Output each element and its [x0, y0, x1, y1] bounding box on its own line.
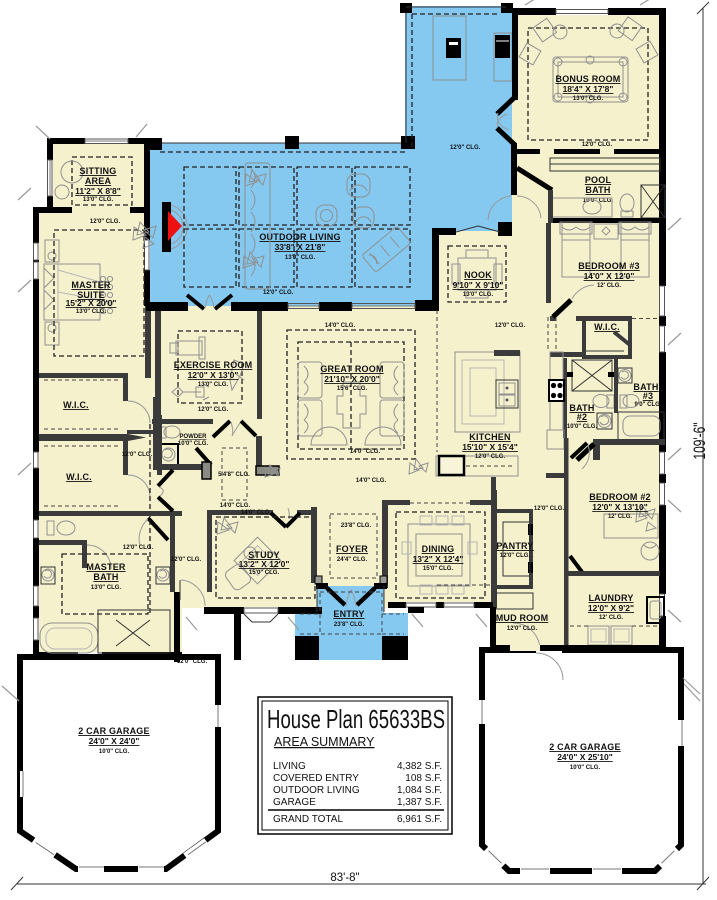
svg-text:#3: #3	[643, 391, 653, 401]
svg-text:13'2" X 12'0": 13'2" X 12'0"	[239, 559, 290, 569]
svg-text:23'8" CLG.: 23'8" CLG.	[341, 523, 372, 529]
svg-text:12'0" CLG.: 12'0" CLG.	[122, 452, 153, 458]
svg-text:10'0" CLG.: 10'0" CLG.	[567, 424, 598, 430]
svg-text:13'0" CLG.: 13'0" CLG.	[91, 585, 122, 591]
svg-text:5'4'8" CLG.: 5'4'8" CLG.	[218, 472, 250, 478]
svg-text:18'4" X 17'8": 18'4" X 17'8"	[563, 84, 614, 94]
svg-text:24'0" X 24'0": 24'0" X 24'0"	[89, 736, 140, 746]
svg-text:LAUNDRY: LAUNDRY	[588, 593, 633, 603]
svg-text:MASTER: MASTER	[86, 562, 125, 572]
svg-text:BONUS ROOM: BONUS ROOM	[556, 74, 621, 84]
svg-text:1,387 S.F.: 1,387 S.F.	[397, 797, 442, 808]
svg-text:109'-6": 109'-6"	[690, 423, 709, 460]
svg-text:1,084 S.F.: 1,084 S.F.	[397, 785, 442, 796]
svg-text:LIVING: LIVING	[273, 761, 306, 772]
svg-text:GRAND TOTAL: GRAND TOTAL	[273, 814, 343, 825]
svg-text:14'0" CLG.: 14'0" CLG.	[220, 503, 251, 509]
svg-text:W.I.C.: W.I.C.	[63, 400, 89, 410]
svg-text:MASTER: MASTER	[71, 280, 110, 290]
svg-text:PANTRY: PANTRY	[496, 541, 533, 551]
svg-text:12'0" CLG.: 12'0" CLG.	[475, 454, 506, 460]
svg-text:15'2" X 20'0": 15'2" X 20'0"	[66, 298, 117, 308]
svg-text:12' CLG.: 12' CLG.	[608, 514, 632, 520]
svg-text:11'2" X 8'8": 11'2" X 8'8"	[75, 186, 121, 196]
svg-text:House Plan 65633BS: House Plan 65633BS	[267, 704, 445, 734]
svg-text:24'0" X 25'10": 24'0" X 25'10"	[557, 752, 613, 762]
svg-text:BEDROOM #3: BEDROOM #3	[578, 261, 640, 271]
svg-text:12'0" CLG.: 12'0" CLG.	[507, 626, 538, 632]
svg-text:W.I.C.: W.I.C.	[594, 322, 620, 332]
svg-text:83'-8": 83'-8"	[330, 872, 359, 884]
svg-text:EXERCISE ROOM: EXERCISE ROOM	[174, 360, 253, 370]
svg-text:14'0" CLG.: 14'0" CLG.	[325, 323, 356, 329]
svg-text:10'0" CLG.: 10'0" CLG.	[570, 765, 601, 771]
svg-text:14'0" X 12'0": 14'0" X 12'0"	[584, 271, 635, 281]
svg-text:15'6" CLG.: 15'6" CLG.	[337, 386, 368, 392]
svg-text:15'0" CLG.: 15'0" CLG.	[249, 570, 280, 576]
svg-text:W.I.C.: W.I.C.	[66, 472, 92, 482]
svg-text:12'0" X 13'0": 12'0" X 13'0"	[188, 370, 239, 380]
svg-text:4,382 S.F.: 4,382 S.F.	[397, 761, 442, 772]
svg-text:12'0" CLG.: 12'0" CLG.	[171, 557, 202, 563]
svg-text:BEDROOM #2: BEDROOM #2	[589, 492, 651, 502]
svg-text:BATH: BATH	[93, 572, 118, 582]
svg-text:MUD ROOM: MUD ROOM	[496, 613, 549, 623]
svg-text:13'0" CLG.: 13'0" CLG.	[83, 197, 114, 203]
svg-text:15'10" X 15'4": 15'10" X 15'4"	[462, 442, 518, 452]
svg-text:AREA: AREA	[85, 176, 112, 186]
svg-text:12'0" CLG.: 12'0" CLG.	[177, 659, 208, 665]
svg-text:OUTDOOR LIVING: OUTDOOR LIVING	[259, 232, 340, 242]
svg-text:14'0" CLG.: 14'0" CLG.	[356, 478, 387, 484]
svg-text:OUTDOOR LIVING: OUTDOOR LIVING	[273, 785, 360, 796]
svg-text:108 S.F.: 108 S.F.	[405, 773, 442, 784]
svg-text:10'0" CLG.: 10'0" CLG.	[178, 441, 209, 447]
svg-text:12'0" CLG.: 12'0" CLG.	[90, 219, 121, 225]
svg-text:10'0" CLG.: 10'0" CLG.	[99, 749, 130, 755]
svg-text:NOOK: NOOK	[464, 270, 492, 280]
svg-text:SITTING: SITTING	[80, 166, 117, 176]
svg-text:13'0" CLG.: 13'0" CLG.	[198, 382, 229, 388]
svg-text:13'0" CLG.: 13'0" CLG.	[463, 292, 494, 298]
svg-text:ENTRY: ENTRY	[333, 609, 364, 619]
svg-text:24'4" CLG.: 24'4" CLG.	[337, 557, 368, 563]
svg-text:12'0" CLG.: 12'0" CLG.	[198, 407, 229, 413]
svg-text:12'0" CLG.: 12'0" CLG.	[500, 553, 531, 559]
svg-text:DINING: DINING	[422, 544, 455, 554]
svg-text:AREA SUMMARY: AREA SUMMARY	[274, 735, 375, 749]
svg-text:POOL: POOL	[585, 175, 612, 185]
svg-text:2 CAR GARAGE: 2 CAR GARAGE	[549, 742, 620, 752]
svg-text:23'8" CLG.: 23'8" CLG.	[334, 622, 365, 628]
svg-text:12' CLG.: 12' CLG.	[597, 283, 621, 289]
svg-text:6,961 S.F.: 6,961 S.F.	[397, 814, 442, 825]
svg-text:12'0" CLG.: 12'0" CLG.	[534, 506, 565, 512]
svg-text:2 CAR GARAGE: 2 CAR GARAGE	[78, 726, 149, 736]
svg-text:13'0" CLG.: 13'0" CLG.	[285, 255, 316, 261]
svg-text:13'0" CLG.: 13'0" CLG.	[76, 309, 107, 315]
svg-text:GREAT ROOM: GREAT ROOM	[320, 364, 383, 374]
svg-text:GARAGE: GARAGE	[273, 797, 316, 808]
svg-text:12'0" X 9'2": 12'0" X 9'2"	[588, 603, 634, 613]
svg-text:POWDER: POWDER	[180, 434, 208, 440]
svg-text:12' CLG.: 12' CLG.	[599, 615, 623, 621]
svg-text:14'0" CLG.: 14'0" CLG.	[350, 449, 381, 455]
svg-text:13'0" CLG.: 13'0" CLG.	[573, 96, 604, 102]
svg-text:12'0" CLG.: 12'0" CLG.	[263, 290, 294, 296]
svg-text:13'2" X 12'4": 13'2" X 12'4"	[413, 554, 464, 564]
svg-text:9'10" X 9'10": 9'10" X 9'10"	[453, 280, 504, 290]
svg-text:12'0" CLG.: 12'0" CLG.	[582, 142, 613, 148]
svg-text:12'0" CLG.: 12'0" CLG.	[450, 145, 481, 151]
svg-text:COVERED ENTRY: COVERED ENTRY	[273, 773, 359, 784]
svg-text:KITCHEN: KITCHEN	[469, 432, 510, 442]
svg-text:12'0" CLG.: 12'0" CLG.	[495, 323, 526, 329]
svg-text:BATH: BATH	[585, 185, 610, 195]
svg-text:FOYER: FOYER	[336, 544, 368, 554]
svg-text:12'0" X 13'10": 12'0" X 13'10"	[592, 502, 648, 512]
svg-text:14'0" CLG.: 14'0" CLG.	[241, 510, 272, 516]
svg-text:15'0" CLG.: 15'0" CLG.	[423, 566, 454, 572]
svg-text:21'10" X 20'0": 21'10" X 20'0"	[324, 374, 380, 384]
svg-text:12'0" CLG.: 12'0" CLG.	[123, 545, 154, 551]
svg-text:#2: #2	[577, 412, 587, 422]
svg-text:33'8" X 21'8": 33'8" X 21'8"	[275, 242, 326, 252]
